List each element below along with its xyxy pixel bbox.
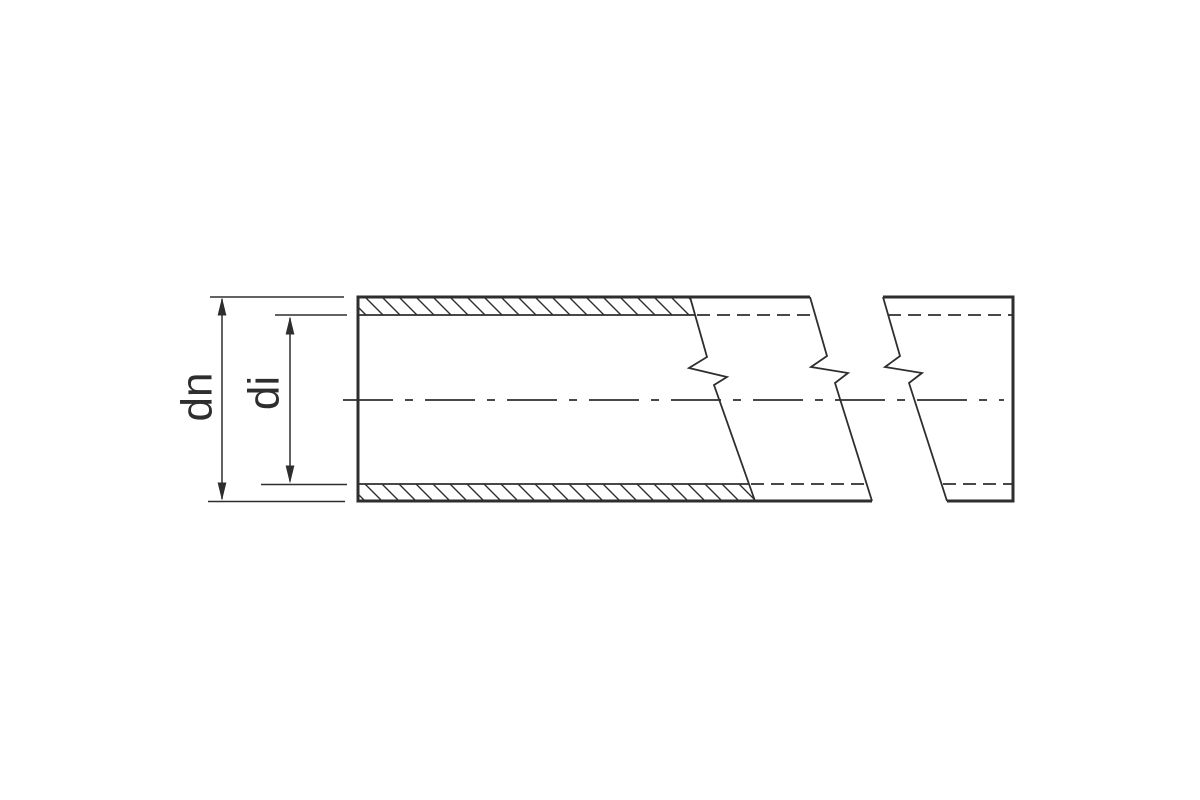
- arrowhead-down-icon: [286, 466, 295, 484]
- arrowhead-up-icon: [286, 317, 295, 335]
- break-line-3: [883, 297, 947, 501]
- pipe-outline: [357, 296, 1015, 503]
- break-line-1: [689, 297, 755, 501]
- arrowhead-up-icon: [218, 298, 227, 316]
- pipe-wall-hatch-top: [358, 297, 695, 315]
- pipe-wall-hatch-bottom: [358, 484, 755, 501]
- break-line-2: [810, 297, 872, 501]
- pipe-technical-drawing: dn di: [0, 0, 1200, 800]
- dimension-label-di: di: [240, 376, 289, 410]
- pipe-section-walls: [358, 297, 755, 501]
- drawing-canvas: dn di: [0, 0, 1200, 800]
- break-lines: [689, 297, 947, 501]
- dimension-di: di: [240, 315, 348, 485]
- dimension-label-dn: dn: [173, 373, 222, 422]
- arrowhead-down-icon: [218, 483, 227, 501]
